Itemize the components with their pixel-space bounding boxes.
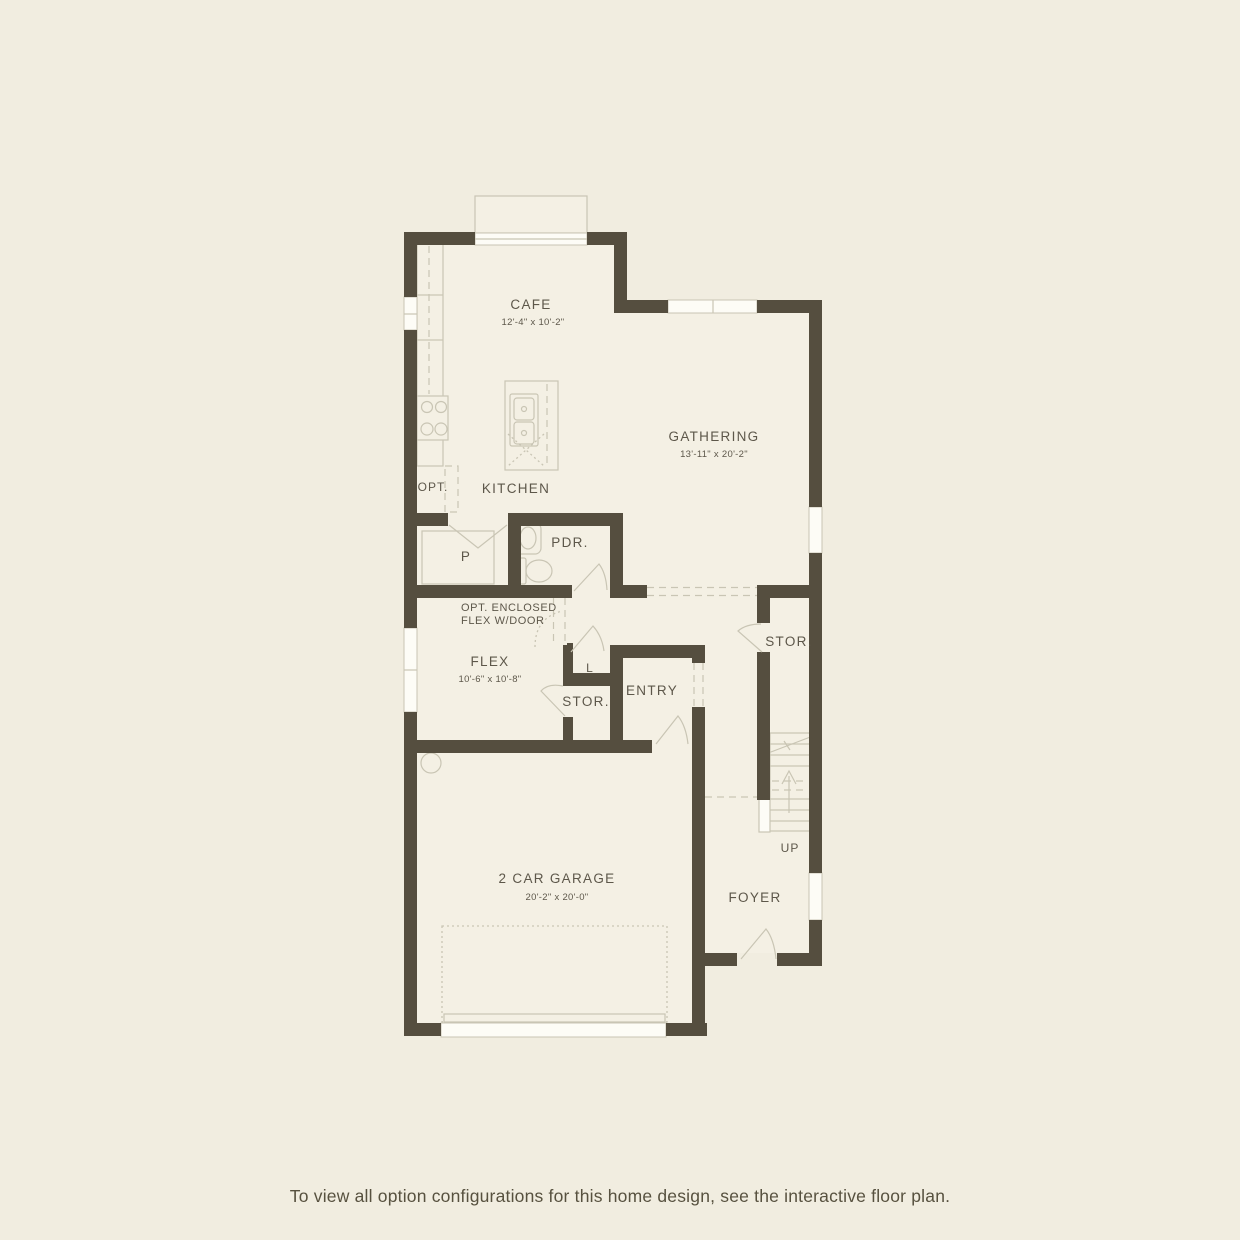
footer-caption: To view all option configurations for th… — [0, 1186, 1240, 1207]
room-label-foyer: FOYER — [728, 890, 781, 905]
room-label-entry: ENTRY — [626, 683, 678, 698]
room-label-storage-understair: STOR. — [765, 634, 813, 649]
room-dims-cafe: 12'-4" x 10'-2" — [502, 317, 565, 328]
floor-areas — [417, 245, 809, 1024]
bay-window — [475, 196, 587, 245]
floor-plan-page: CAFE 12'-4" x 10'-2" GATHERING 13'-11" x… — [0, 0, 1240, 1240]
flex-option-note-line2: FLEX W/DOOR — [461, 615, 545, 627]
room-label-kitchen: KITCHEN — [482, 481, 550, 496]
label-opt-appliance: OPT. — [418, 480, 449, 494]
room-label-cafe: CAFE — [510, 297, 551, 312]
room-label-storage: STOR. — [562, 694, 610, 709]
room-label-linen: L — [586, 661, 594, 675]
room-dims-flex: 10'-6" x 10'-8" — [459, 674, 522, 685]
garage-door-opening — [441, 1023, 666, 1037]
room-label-garage: 2 CAR GARAGE — [499, 871, 616, 886]
room-dims-garage: 20'-2" x 20'-0" — [526, 892, 589, 903]
room-label-gathering: GATHERING — [669, 429, 760, 444]
garage-door-panel — [444, 1014, 665, 1022]
stairs-up-label: UP — [781, 841, 800, 855]
room-label-powder: PDR. — [551, 535, 588, 550]
room-label-flex: FLEX — [471, 654, 510, 669]
room-dims-gathering: 13'-11" x 20'-2" — [680, 449, 748, 460]
stair-newel — [759, 799, 770, 832]
floor-plan-drawing: CAFE 12'-4" x 10'-2" GATHERING 13'-11" x… — [0, 0, 1240, 1240]
room-label-pantry: P — [461, 549, 471, 564]
flex-option-note-line1: OPT. ENCLOSED — [461, 602, 557, 614]
stove-icon — [417, 396, 448, 440]
